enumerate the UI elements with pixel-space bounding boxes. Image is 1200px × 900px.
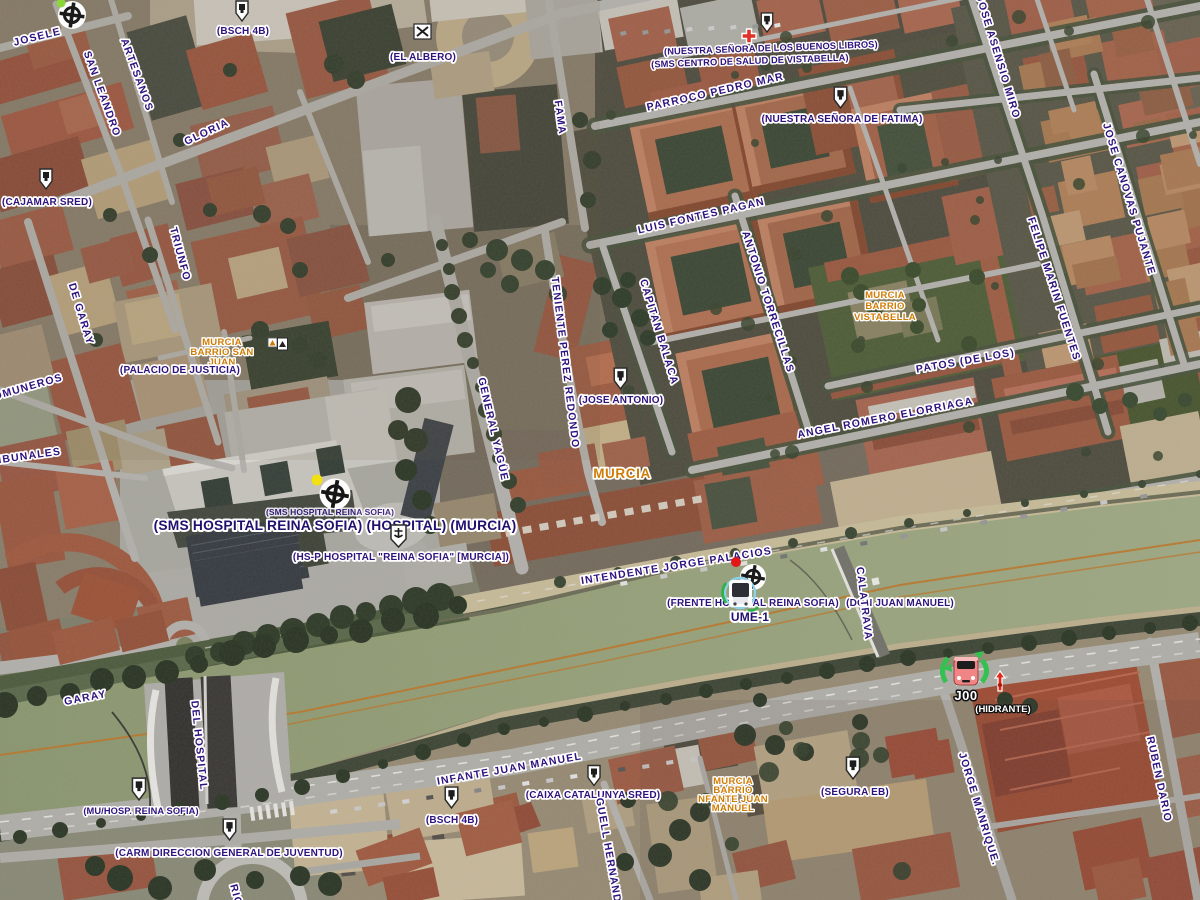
svg-text:(MU/HOSP. REINA SOFIA): (MU/HOSP. REINA SOFIA) (83, 806, 198, 816)
svg-text:UME-1: UME-1 (731, 610, 769, 624)
svg-text:(SEGURA EB): (SEGURA EB) (821, 787, 889, 798)
svg-text:(CAIXA CATALUNYA SRED): (CAIXA CATALUNYA SRED) (526, 790, 661, 801)
svg-text:(CAJAMAR SRED): (CAJAMAR SRED) (2, 197, 92, 208)
svg-text:VISTABELLA: VISTABELLA (854, 312, 916, 323)
svg-text:(BSCH 4B): (BSCH 4B) (217, 26, 269, 37)
svg-text:(NUESTRA SEÑORA DE FATIMA): (NUESTRA SEÑORA DE FATIMA) (762, 112, 923, 125)
svg-text:(EL ALBERO): (EL ALBERO) (390, 52, 456, 63)
svg-text:(HS-P HOSPITAL "REINA SOFIA" [: (HS-P HOSPITAL "REINA SOFIA" [MURCIA]) (293, 552, 509, 563)
svg-text:(PALACIO DE JUSTICIA): (PALACIO DE JUSTICIA) (120, 365, 240, 376)
svg-text:(SMS HOSPITAL REINA SOFIA) (HO: (SMS HOSPITAL REINA SOFIA) (HOSPITAL) (M… (154, 518, 517, 533)
svg-text:MURCIA: MURCIA (865, 290, 905, 301)
svg-text:(CARM DIRECCION GENERAL DE JUV: (CARM DIRECCION GENERAL DE JUVENTUD) (115, 848, 343, 859)
svg-text:(HIDRANTE): (HIDRANTE) (975, 704, 1030, 715)
svg-text:(BSCH 4B): (BSCH 4B) (426, 815, 478, 826)
svg-text:(JOSE ANTONIO): (JOSE ANTONIO) (579, 395, 663, 406)
svg-text:MURCIA: MURCIA (593, 466, 651, 481)
svg-text:J00: J00 (954, 688, 977, 703)
svg-text:MANUEL: MANUEL (712, 803, 754, 814)
svg-text:BARRIO: BARRIO (865, 301, 904, 312)
